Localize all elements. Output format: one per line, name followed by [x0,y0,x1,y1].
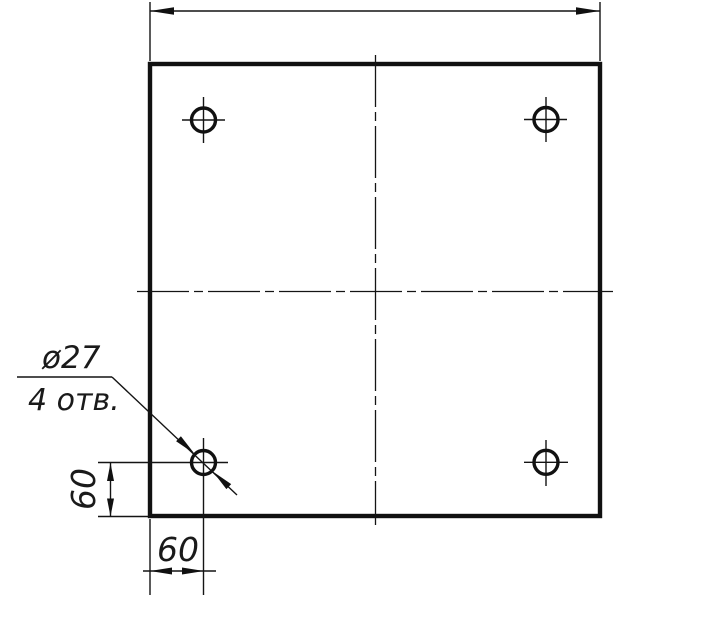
arrowhead-down [107,499,114,517]
arrowhead-up [107,463,114,481]
leader-note-diameter: ø27 [41,340,101,376]
dim-bottom-value: 60 [157,530,199,569]
dimension-top-overall [150,2,600,61]
plate-drawing-svg: 60 60 ø27 4 отв. [0,0,713,631]
dim-left-value: 60 [64,468,103,510]
arrowhead-top-right [576,7,600,15]
arrowhead-top-left [150,7,174,15]
hole-bottom-right [524,440,568,486]
leader-arrowhead-upper [176,436,194,454]
drawing-canvas: 60 60 ø27 4 отв. [0,0,713,631]
leader-note-holes-count: 4 отв. [28,383,120,418]
dimension-bottom-60: 60 [143,519,216,595]
dimension-left-60: 60 [64,463,150,517]
hole-top-right [524,97,567,142]
leader-arrowhead-lower [213,472,231,490]
hole-top-left [182,97,225,143]
